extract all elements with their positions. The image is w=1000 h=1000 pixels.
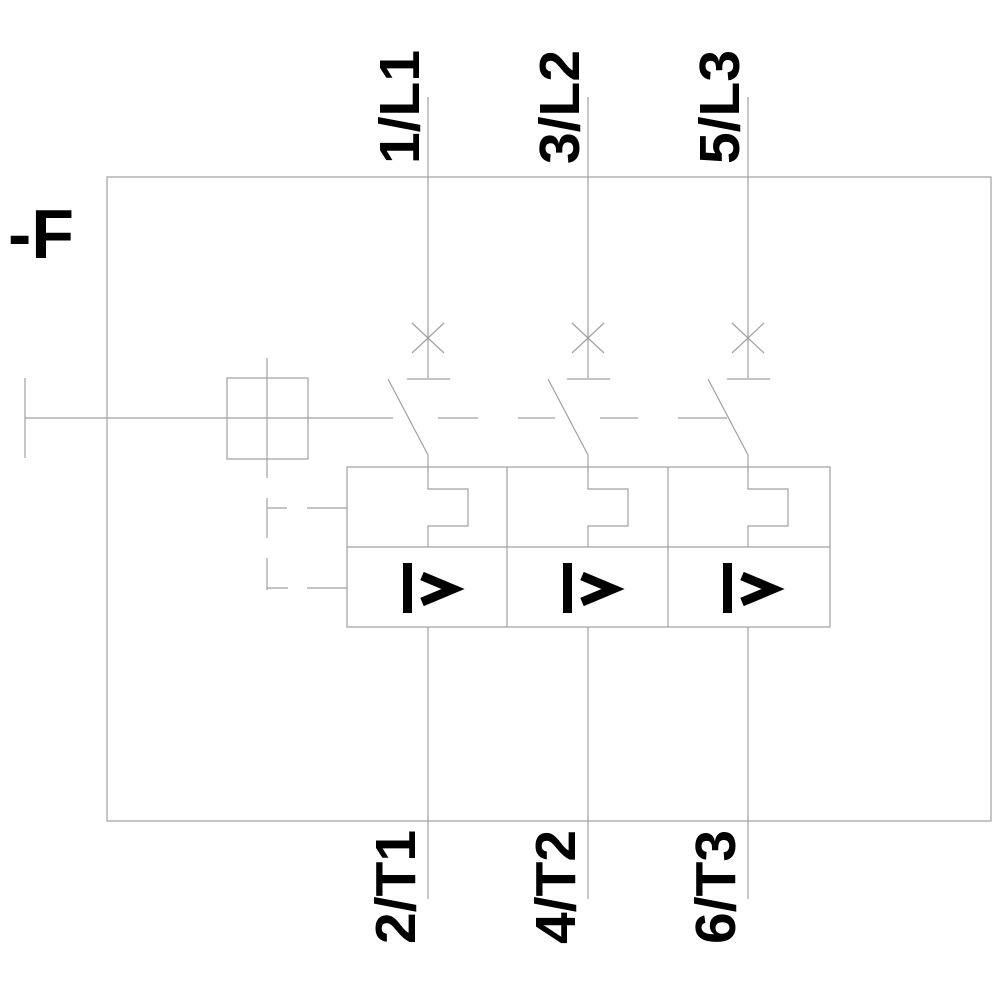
overcurrent-trip-symbols bbox=[408, 563, 774, 613]
terminal-label-2T1: 2/T1 bbox=[364, 830, 428, 944]
terminal-label-5L3: 5/L3 bbox=[688, 50, 752, 164]
schematic-lines bbox=[25, 97, 991, 899]
circuit-breaker-schematic: -F 1/L1 3/L2 5/L3 2/T1 4/T2 6/T3 bbox=[0, 0, 1000, 1000]
terminal-label-3L2: 3/L2 bbox=[528, 50, 592, 164]
pole-2-blade-and-thermal-element bbox=[548, 379, 628, 547]
terminal-label-1L1: 1/L1 bbox=[368, 50, 432, 164]
terminal-label-4T2: 4/T2 bbox=[524, 830, 588, 944]
enclosure-boundary bbox=[107, 177, 991, 821]
trip-linkage-dashes bbox=[267, 498, 347, 590]
operating-mechanism bbox=[25, 358, 393, 590]
greater-than-icon bbox=[742, 576, 773, 602]
pole-1-blade-and-thermal-element bbox=[388, 379, 468, 547]
overcurrent-symbol-pole-1 bbox=[408, 563, 454, 613]
pole-1 bbox=[388, 97, 468, 899]
device-tag-label: -F bbox=[8, 195, 74, 273]
overcurrent-symbol-pole-2 bbox=[568, 563, 614, 613]
greater-than-icon bbox=[422, 576, 453, 602]
page: { "schematic": { "description": "3-pole … bbox=[0, 0, 1000, 1000]
terminal-label-6T3: 6/T3 bbox=[684, 830, 748, 944]
pole-3-blade-and-thermal-element bbox=[708, 379, 788, 547]
pole-3 bbox=[708, 97, 788, 899]
overcurrent-symbol-pole-3 bbox=[728, 563, 774, 613]
greater-than-icon bbox=[582, 576, 613, 602]
pole-2 bbox=[548, 97, 628, 899]
labels: -F 1/L1 3/L2 5/L3 2/T1 4/T2 6/T3 bbox=[8, 50, 752, 944]
